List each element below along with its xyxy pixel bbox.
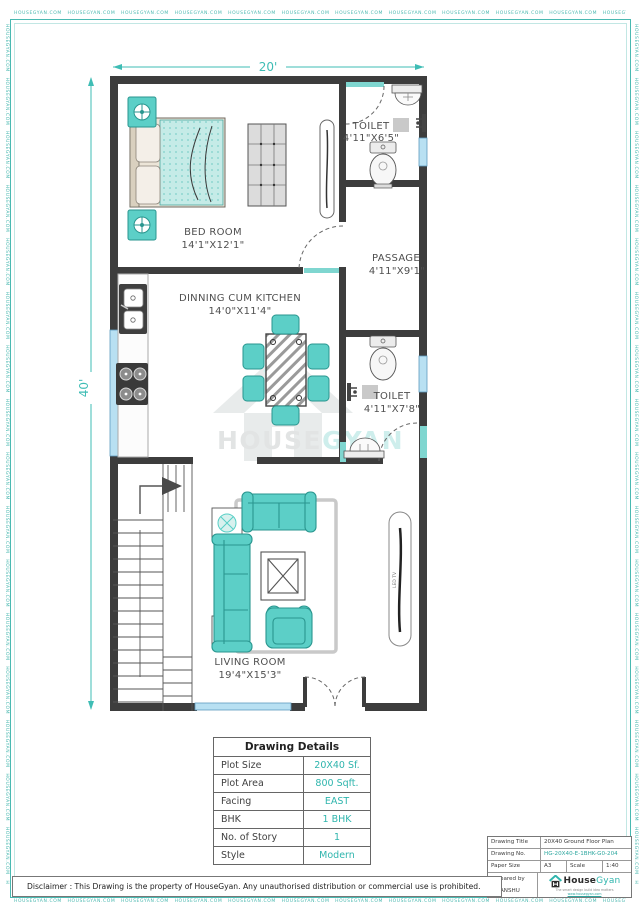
title-block-row: Drawing Title 20X40 Ground Floor Plan — [488, 837, 631, 849]
window-living — [195, 703, 291, 710]
dimension-top: 20' — [113, 60, 424, 74]
table-row: Style Modern — [214, 847, 370, 864]
bedroom-label: BED ROOM — [184, 227, 242, 238]
washbasin-toilet1-icon — [392, 85, 422, 105]
stove-icon — [116, 363, 148, 405]
coffee-table — [261, 552, 305, 600]
kitchen-label: DINNING CUM KITCHEN — [179, 293, 301, 304]
window-toilet1 — [419, 138, 427, 166]
sofa-three-seat — [212, 534, 252, 652]
entry-door-arc-right — [335, 677, 365, 707]
entry-door-arc-left — [305, 677, 335, 707]
brand-house: House — [564, 876, 597, 886]
disclaimer: Disclaimer : This Drawing is the propert… — [12, 876, 502, 897]
dimension-left: 40' — [77, 77, 94, 710]
table-row: BHK 1 BHK — [214, 811, 370, 829]
brand-website-link[interactable]: www.housegyan.com — [568, 892, 602, 896]
window-toilet2 — [419, 356, 427, 392]
title-block-row: Paper Size A3 Scale 1:40 — [488, 861, 631, 873]
kitchen-sink-icon — [119, 284, 147, 334]
table-row: Plot Area 800 Sqft. — [214, 775, 370, 793]
svg-text:40': 40' — [77, 379, 91, 398]
led-tv: LED TV — [389, 512, 411, 646]
title-block-row: Prepared by DIPANSHU HouseGyan The smart… — [488, 873, 631, 897]
sofa-two-seat — [242, 492, 316, 532]
toilet1-size: 4'11"X6'5" — [343, 133, 399, 144]
wc-toilet2-icon — [370, 336, 396, 380]
toilet2-label: TOILET — [373, 391, 411, 402]
armchair — [266, 606, 312, 648]
brand-gyan: Gyan — [596, 876, 620, 886]
drawing-details-table: Drawing Details Plot Size 20X40 Sf. Plot… — [213, 737, 371, 865]
watermark-house-text: HOUSE — [217, 426, 322, 455]
svg-text:20': 20' — [259, 60, 278, 74]
dresser-mirror — [320, 120, 334, 218]
dining-table — [266, 334, 306, 406]
table-row: Facing EAST — [214, 793, 370, 811]
toilet1-label: TOILET — [352, 121, 390, 132]
living-size: 19'4"X15'3" — [218, 670, 281, 681]
shelf-toilet1 — [393, 118, 409, 132]
shower-toilet2-icon — [347, 383, 357, 401]
bedroom-door-arc — [299, 226, 343, 270]
title-block: Drawing Title 20X40 Ground Floor Plan Dr… — [487, 836, 632, 898]
toilet1-door-arc — [346, 86, 384, 124]
housegyan-logo-icon — [549, 875, 562, 888]
drawing-details-title: Drawing Details — [214, 738, 370, 757]
passage-label: PASSAGE — [372, 253, 420, 264]
table-row: No. of Story 1 — [214, 829, 370, 847]
kitchen-size: 14'0"X11'4" — [208, 306, 271, 317]
passage-size: 4'11"X9'1" — [369, 266, 425, 277]
svg-text:LED TV: LED TV — [392, 571, 398, 588]
living-label: LIVING ROOM — [214, 657, 285, 668]
wardrobe — [248, 124, 286, 206]
toilet2-size: 4'11"X7'8" — [364, 404, 420, 415]
bed — [130, 118, 225, 207]
table-row: Plot Size 20X40 Sf. — [214, 757, 370, 775]
nightstand-bottom — [128, 210, 156, 240]
title-block-row: Drawing No. HG-20X40-E-1BHK-G0-204 — [488, 849, 631, 861]
wc-toilet1-icon — [370, 142, 396, 188]
staircase — [113, 464, 192, 711]
stair-direction-arrow — [162, 477, 182, 495]
bedroom-size: 14'1"X12'1" — [181, 240, 244, 251]
nightstand-top — [128, 97, 156, 127]
housegyan-logo: HouseGyan The smart design build idea ma… — [538, 873, 631, 897]
